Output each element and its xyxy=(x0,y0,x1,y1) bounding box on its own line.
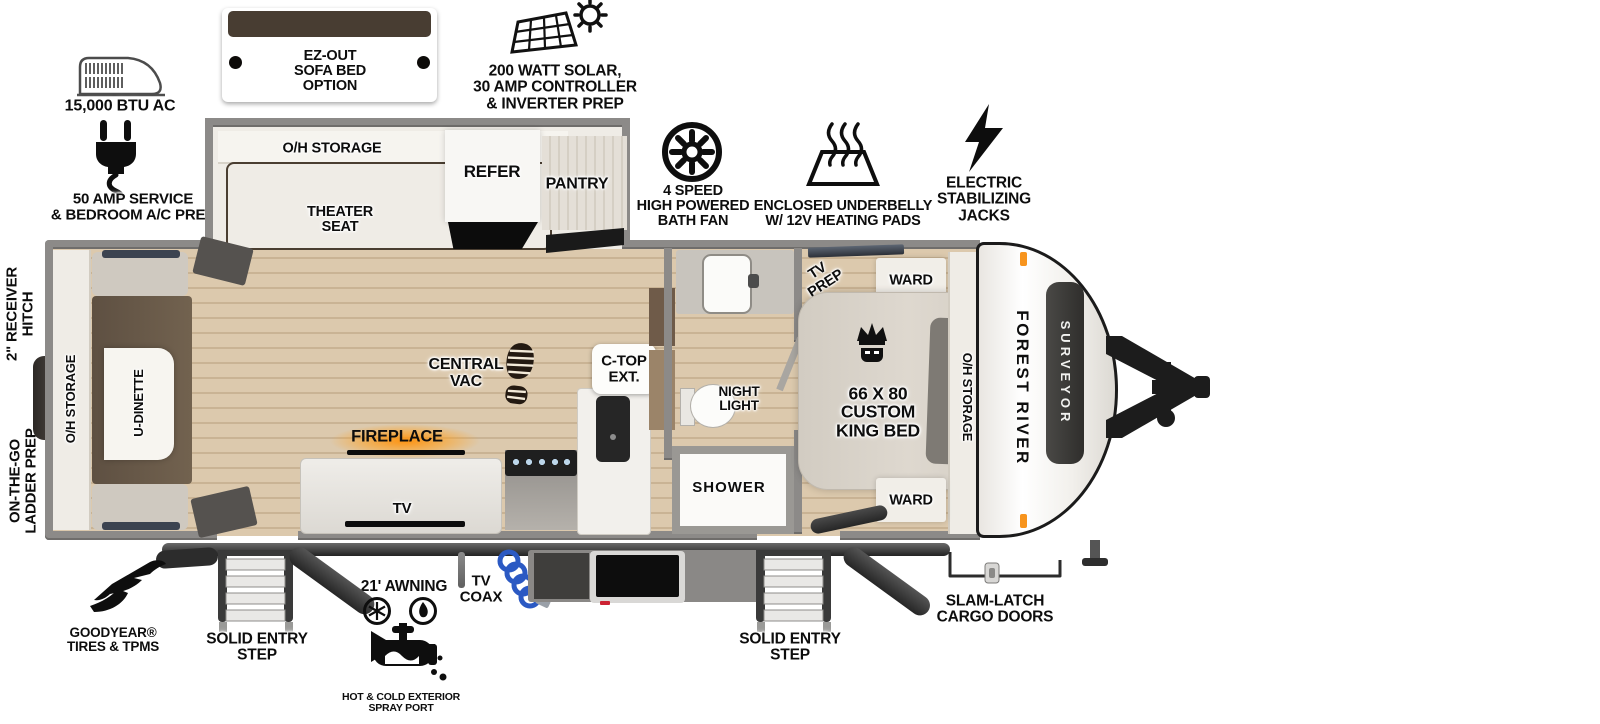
sofa-foot-right xyxy=(417,56,430,69)
spray-port-label: HOT & COLD EXTERIOR SPRAY PORT xyxy=(326,692,476,714)
solar-label: 200 WATT SOLAR, 30 AMP CONTROLLER & INVE… xyxy=(465,64,645,113)
bath-fan-label: 4 SPEED HIGH POWERED BATH FAN xyxy=(623,184,763,230)
wall-top-left xyxy=(45,240,208,249)
rear-overhead-label: O/H STORAGE xyxy=(64,355,78,444)
marker-light-top xyxy=(1020,252,1027,266)
dinette-trim-top xyxy=(102,250,180,258)
entry-step-icon-2 xyxy=(750,548,838,634)
front-jack-foot xyxy=(1090,540,1100,560)
sink-faucet xyxy=(610,434,616,440)
crown-icon xyxy=(852,322,892,364)
cargo-latch-icon xyxy=(984,562,1000,584)
kitchen-sink xyxy=(596,396,630,462)
brand-label: FOREST RIVER xyxy=(1013,310,1031,466)
winged-foot-icon xyxy=(82,556,168,620)
receiver-hitch-label: 2" RECEIVER HITCH xyxy=(4,267,36,361)
sofa-option-label: EZ-OUT SOFA BED OPTION xyxy=(294,49,366,95)
entry-step-icon-1 xyxy=(212,548,300,634)
heating-pads-icon xyxy=(806,122,880,188)
marker-light-bottom xyxy=(1020,514,1027,528)
awning-label: 21' AWNING xyxy=(361,579,447,595)
entry-step-2-label: SOLID ENTRY STEP xyxy=(720,632,860,665)
bath-sink xyxy=(702,254,752,314)
sofa-back-cushion xyxy=(228,11,431,37)
udinette-label: U-DINETTE xyxy=(132,369,146,437)
central-vac-label: CENTRAL VAC xyxy=(428,357,503,391)
shower-label: SHOWER xyxy=(692,480,766,496)
tv-label: TV xyxy=(393,501,412,517)
slide-overhead-label: O/H STORAGE xyxy=(282,141,381,156)
hitch-icon xyxy=(1106,322,1210,452)
lightning-bolt-icon xyxy=(957,104,1009,172)
fan-icon xyxy=(660,120,724,184)
ward-bottom-label: WARD xyxy=(889,493,933,508)
model-label: SURVEYOR xyxy=(1058,321,1072,426)
fireplace-insert xyxy=(347,450,465,455)
wall-left xyxy=(45,240,53,540)
wall-bottom-1 xyxy=(45,531,217,540)
refer-label: REFER xyxy=(464,163,521,181)
king-bed-label: 66 X 80 CUSTOM KING BED xyxy=(836,384,920,439)
cargo-door-outline xyxy=(948,552,1064,586)
theater-seat-label: THEATER SEAT xyxy=(307,205,373,235)
bed-overhead-label: O/H STORAGE xyxy=(960,353,974,442)
jacks-label: ELECTRIC STABILIZING JACKS xyxy=(919,176,1049,225)
front-jack-pad xyxy=(1082,558,1108,566)
slideout-wall-left xyxy=(205,118,213,249)
dinette-cushion-top xyxy=(92,252,188,296)
spray-port-icon xyxy=(356,596,448,688)
ac-unit-icon xyxy=(72,50,168,104)
pantry-label: PANTRY xyxy=(546,177,609,194)
goodyear-label: GOODYEAR® TIRES & TPMS xyxy=(43,626,183,654)
underbelly-label: ENCLOSED UNDERBELLY W/ 12V HEATING PADS xyxy=(743,199,943,229)
bath-faucet xyxy=(748,274,759,288)
ac-label: 15,000 BTU AC xyxy=(35,99,205,116)
slideout-wall-top xyxy=(205,118,630,127)
exterior-compartment-dark xyxy=(534,553,589,599)
bath-wall-left xyxy=(664,248,672,460)
fireplace-label: FIREPLACE xyxy=(351,428,443,445)
tv-bar xyxy=(345,521,465,527)
ladder-prep-label: ON-THE-GO LADDER PREP xyxy=(7,428,39,533)
wall-top-right xyxy=(627,240,980,249)
floorplan-canvas: 15,000 BTU AC 50 AMP SERVICE & BEDROOM A… xyxy=(0,0,1600,724)
exterior-tv-screen xyxy=(596,555,679,597)
sofa-foot-left xyxy=(229,56,242,69)
solar-panel-icon xyxy=(508,0,608,64)
power-plug-icon xyxy=(88,118,144,198)
exterior-tv-logo xyxy=(600,601,610,605)
stove-burners xyxy=(509,456,573,468)
cargo-doors-label: SLAM-LATCH CARGO DOORS xyxy=(915,594,1075,627)
night-light-label: NIGHT LIGHT xyxy=(719,385,760,413)
entry-step-1-label: SOLID ENTRY STEP xyxy=(187,632,327,665)
ctop-ext-label: C-TOP EXT. xyxy=(601,353,646,385)
ward-top-label: WARD xyxy=(889,273,933,288)
dinette-trim-bottom xyxy=(102,522,180,530)
